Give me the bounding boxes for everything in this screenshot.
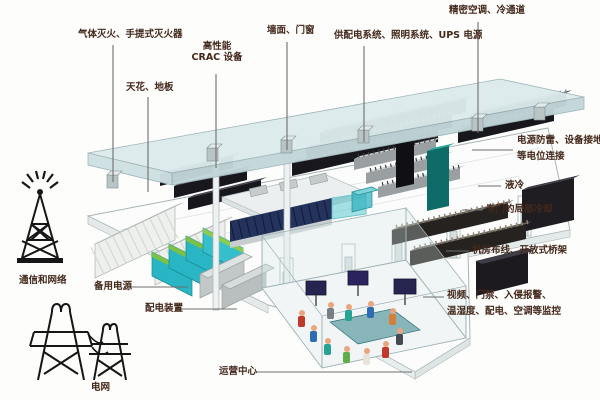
label-fire-suppression: 气体灭火、手提式灭火器 — [78, 29, 183, 40]
label-local-cooling: 专门的局部冷却 — [486, 204, 553, 215]
label-liquid-cooling: 液冷 — [505, 180, 524, 191]
label-crac: 高性能 CRAC 设备 — [184, 41, 250, 63]
label-wall-door: 墙面、门窗 — [267, 25, 315, 36]
datacenter-diagram: 气体灭火、手提式灭火器 天花、地板 高性能 CRAC 设备 墙面、门窗 供配电系… — [0, 0, 600, 400]
power-pylon-icon — [30, 304, 131, 380]
label-surge-line2: 等电位连接 — [517, 151, 600, 162]
label-power-lighting-ups: 供配电系统、照明系统、UPS 电源 — [334, 30, 482, 41]
label-cabling: 机房布线、开放式桥架 — [472, 245, 567, 256]
label-crac-line1: 高性能 — [184, 41, 250, 52]
isometric-illustration — [0, 0, 600, 400]
label-comms-network: 通信和网络 — [19, 275, 67, 286]
label-ops-center: 运营中心 — [219, 366, 257, 377]
label-power-distribution: 配电装置 — [145, 303, 183, 314]
label-grid: 电网 — [91, 382, 110, 393]
label-backup-power: 备用电源 — [94, 281, 132, 292]
label-precision-ac: 精密空调、冷通道 — [449, 5, 525, 16]
label-crac-line2: CRAC 设备 — [184, 52, 250, 63]
label-monitoring-line1: 视频、门禁、入侵报警、 — [447, 290, 561, 301]
label-ceiling-floor: 天花、地板 — [126, 82, 174, 93]
label-surge-line1: 电源防雷、设备接地、 — [517, 135, 600, 146]
label-monitoring: 视频、门禁、入侵报警、 温湿度、配电、空调等监控 — [447, 290, 561, 317]
label-surge-grounding: 电源防雷、设备接地、 等电位连接 — [517, 135, 600, 162]
label-monitoring-line2: 温湿度、配电、空调等监控 — [447, 306, 561, 317]
radio-tower-icon — [17, 171, 63, 263]
